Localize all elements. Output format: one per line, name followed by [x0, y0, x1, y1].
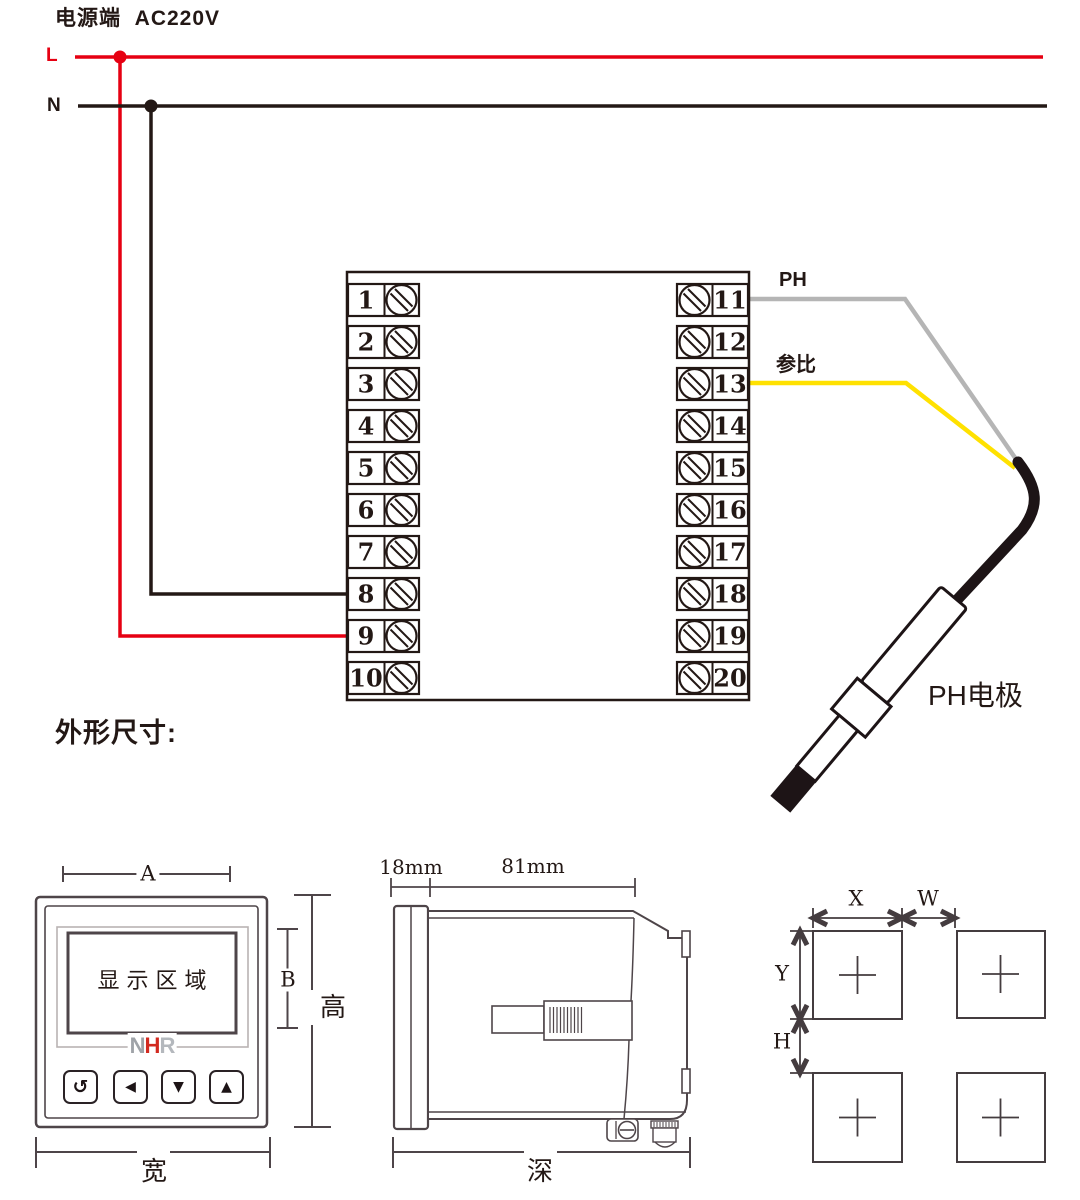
- side-clip-bottom: [682, 1069, 690, 1093]
- front-view: [36, 866, 331, 1168]
- ph-electrode-label: PH电极: [928, 682, 1023, 710]
- terminal-number: 13: [713, 370, 746, 399]
- terminal-number: 19: [713, 622, 746, 651]
- dimensions-section-title: 外形尺寸:: [55, 720, 177, 747]
- terminal-number: 7: [358, 538, 375, 567]
- live-junction-dot: [114, 51, 127, 64]
- side-view: [391, 878, 690, 1168]
- terminal-number: 12: [713, 328, 746, 357]
- cutout-view: [790, 908, 1045, 1162]
- neutral-junction-dot: [145, 100, 158, 113]
- terminal-number: 14: [713, 412, 746, 441]
- terminal-screw-icon: [680, 411, 710, 441]
- ref-wire: [749, 383, 1015, 468]
- width-dim-label: 宽: [141, 1159, 167, 1185]
- side-clip-top: [682, 931, 690, 957]
- terminal-number: 20: [713, 664, 746, 693]
- terminal-number: 2: [358, 328, 375, 357]
- cutout-cross-br: [982, 1099, 1019, 1137]
- button-up: ▲: [209, 1070, 244, 1104]
- nhr-logo-h: H: [145, 1033, 160, 1059]
- down-arrow-icon: ▼: [173, 1079, 184, 1095]
- nhr-logo-r: R: [159, 1033, 174, 1059]
- dim-x-label: X: [849, 889, 864, 910]
- terminal-screw-icon: [680, 537, 710, 567]
- diagram-linework: [0, 0, 1080, 1200]
- dim-18-81-line: [391, 878, 635, 897]
- terminal-number: 3: [358, 370, 375, 399]
- electrode-tube: [797, 715, 858, 781]
- terminal-screw-icon: [387, 453, 417, 483]
- live-wire-drop: [120, 57, 350, 636]
- dim-h-label: H: [773, 1032, 791, 1053]
- terminal-number: 8: [358, 580, 375, 609]
- nhr-logo: N H R: [128, 1033, 177, 1059]
- terminal-screw-icon: [387, 285, 417, 315]
- return-icon: ↺: [73, 1076, 89, 1098]
- terminal-screw-icon: [680, 327, 710, 357]
- terminal-number: 5: [358, 454, 375, 483]
- ref-wire-label: 参比: [776, 355, 816, 375]
- terminal-screw-icon: [680, 285, 710, 315]
- left-arrow-icon: ◀: [125, 1079, 136, 1095]
- latch-arm: [492, 1006, 544, 1033]
- gland-dome: [655, 1142, 675, 1147]
- terminal-number: 4: [358, 412, 375, 441]
- dim-81mm-label: 81mm: [501, 856, 564, 876]
- terminal-screw-icon: [387, 327, 417, 357]
- sensor-wires: [749, 299, 1018, 468]
- terminal-number: 10: [349, 664, 382, 693]
- gland-body: [653, 1128, 676, 1142]
- button-down: ▼: [161, 1070, 196, 1104]
- dim-y-label: Y: [775, 964, 789, 985]
- terminal-screw-icon: [680, 495, 710, 525]
- live-line-label: L: [46, 46, 58, 65]
- terminal-number: 9: [358, 622, 375, 651]
- terminal-number: 15: [713, 454, 746, 483]
- gland-flange: [651, 1121, 678, 1128]
- terminal-number: 17: [713, 538, 746, 567]
- terminal-block: [347, 272, 749, 700]
- power-terminal-title: 电源端 AC220V: [55, 8, 220, 29]
- terminal-screw-icon: [680, 621, 710, 651]
- terminal-screw-icon: [680, 663, 710, 693]
- cutout-cross-tr: [982, 955, 1019, 993]
- cutout-cross-tl: [839, 956, 876, 994]
- button-return: ↺: [63, 1070, 98, 1104]
- electrode-cable: [956, 462, 1034, 601]
- dim-yh-line: [790, 931, 812, 1073]
- button-left: ◀: [113, 1070, 148, 1104]
- terminal-screw-icon: [387, 411, 417, 441]
- terminal-number: 18: [713, 580, 746, 609]
- ph-electrode: [763, 462, 1034, 818]
- nhr-logo-n: N: [130, 1033, 145, 1059]
- terminal-screw-icon: [387, 537, 417, 567]
- terminal-screw-icon: [387, 621, 417, 651]
- terminal-number: 16: [713, 496, 746, 525]
- wiring-diagram-page: 1112123134145156167178189191020 电源端 AC22…: [0, 0, 1080, 1200]
- terminal-screw-icon: [680, 453, 710, 483]
- terminal-screw-icon: [680, 369, 710, 399]
- dim-a-label: A: [136, 863, 159, 886]
- terminal-screw-icon: [387, 495, 417, 525]
- up-arrow-icon: ▲: [221, 1079, 232, 1095]
- dim-b-label: B: [276, 969, 299, 992]
- terminal-screw-icon: [680, 579, 710, 609]
- dim-xw-line: [813, 908, 955, 928]
- dim-18mm-label: 18mm: [379, 857, 442, 877]
- dim-w-label: W: [917, 889, 939, 910]
- depth-dim-label: 深: [527, 1159, 553, 1185]
- terminal-number: 6: [358, 496, 375, 525]
- neutral-wire-drop: [151, 106, 350, 594]
- terminal-screw-icon: [387, 663, 417, 693]
- terminal-number: 11: [713, 286, 746, 315]
- cutout-cross-bl: [839, 1099, 876, 1137]
- ph-wire-label: PH: [779, 270, 807, 290]
- terminal-screw-icon: [387, 579, 417, 609]
- terminal-screw-icon: [387, 369, 417, 399]
- display-area-label: 显示区域: [90, 971, 213, 993]
- neutral-line-label: N: [47, 96, 61, 115]
- height-dim-label: 高: [320, 995, 346, 1021]
- terminal-number: 1: [358, 286, 375, 315]
